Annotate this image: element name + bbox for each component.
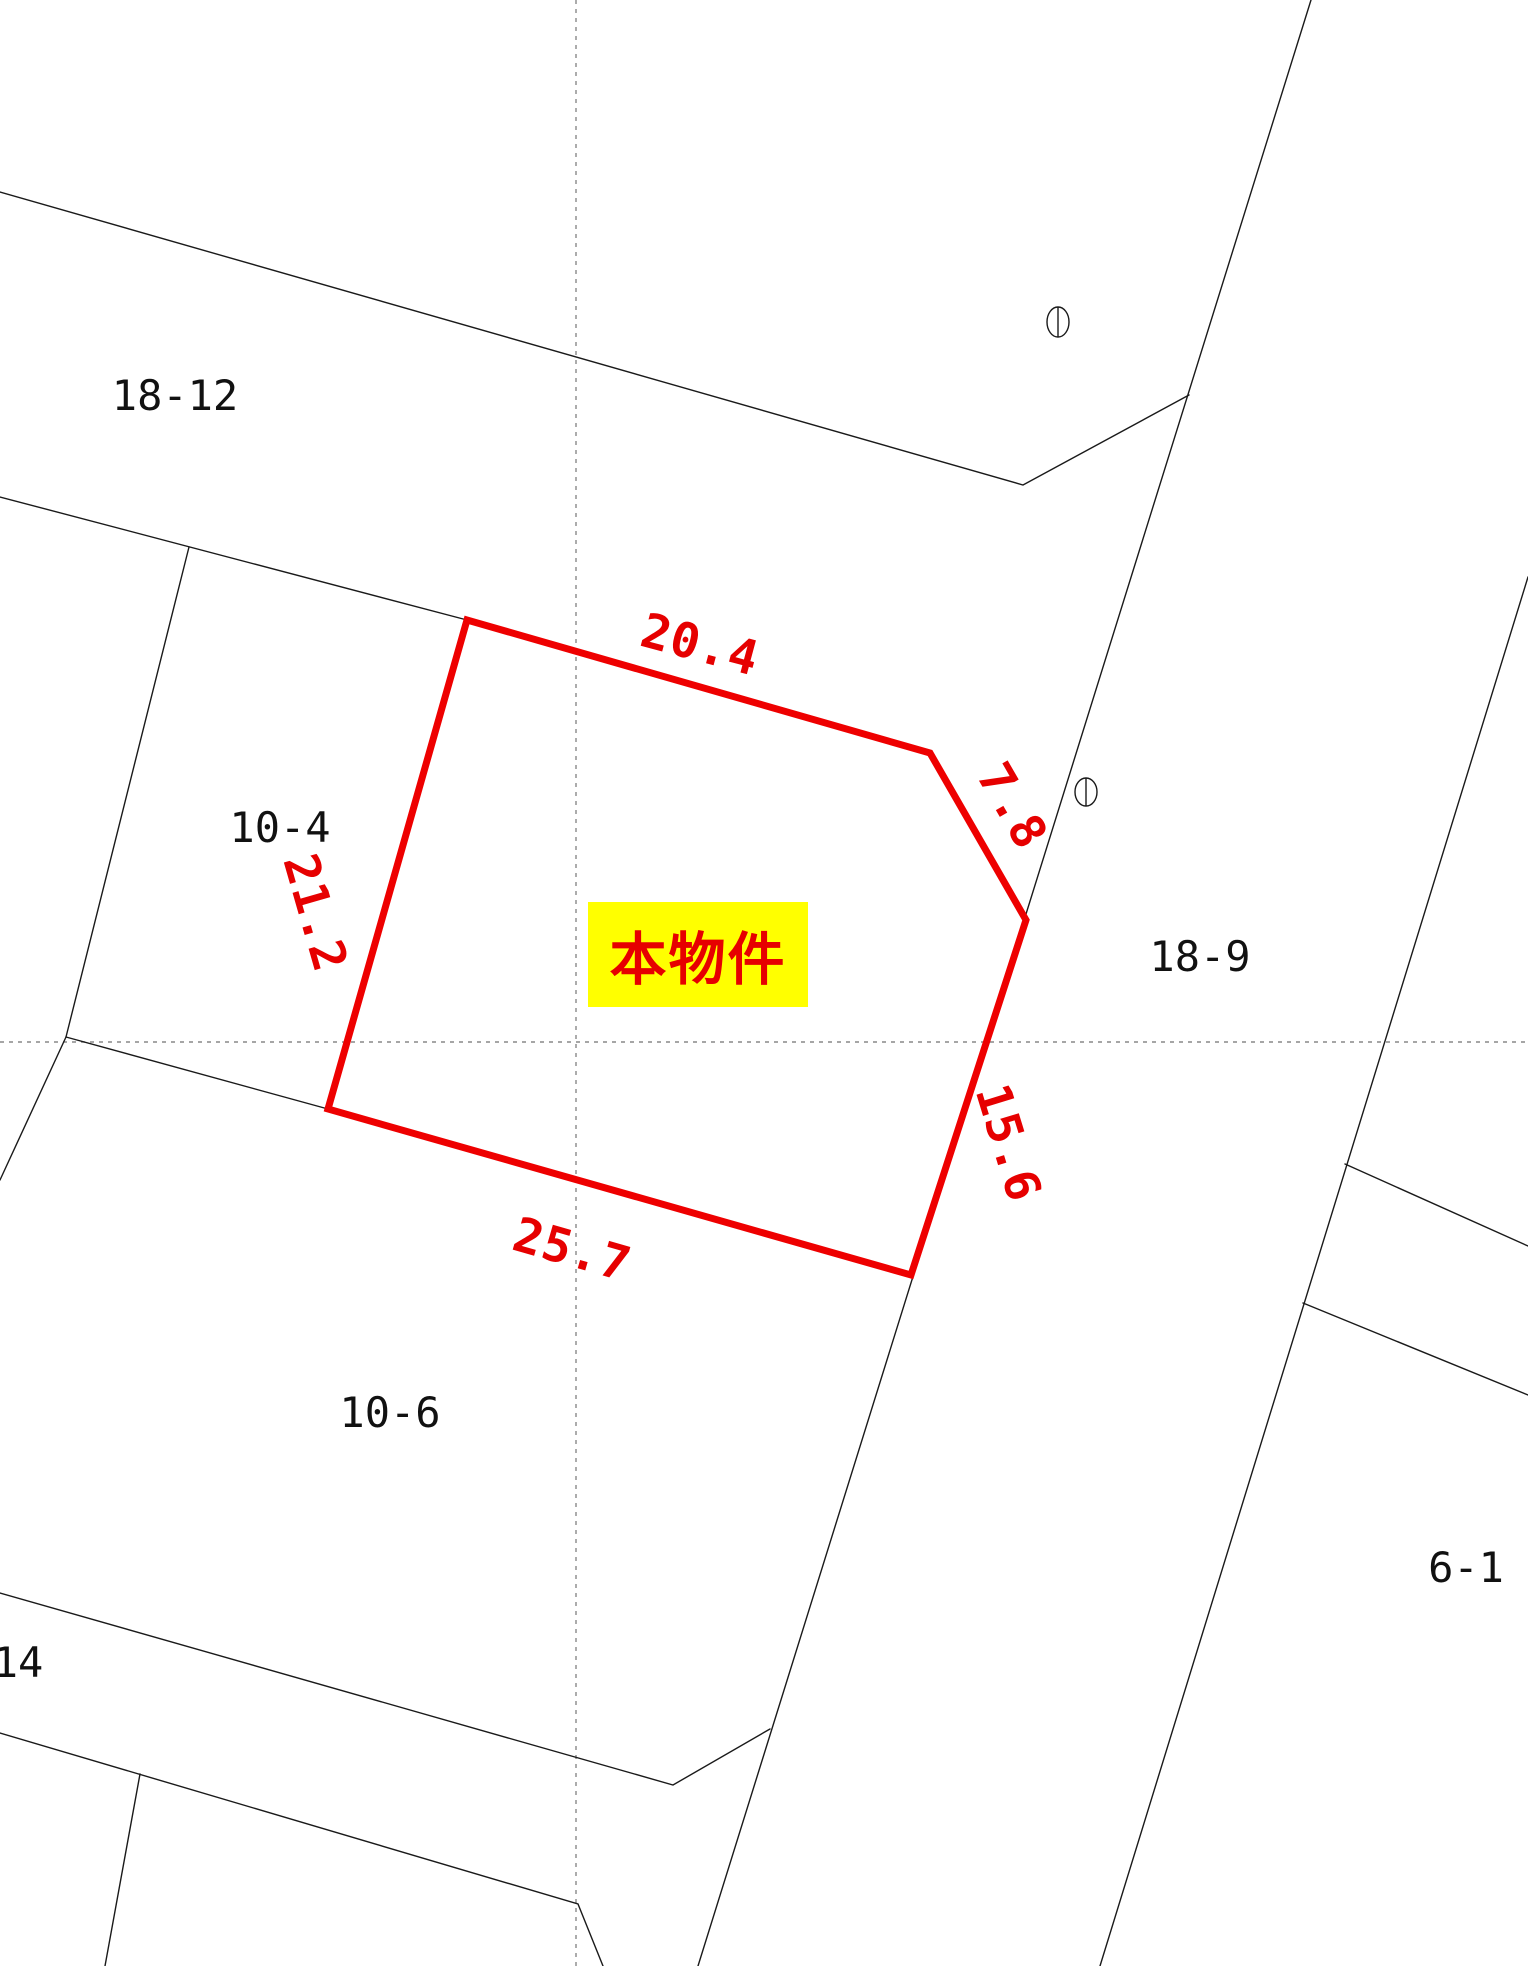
boundary-14-strip-upper — [0, 1593, 770, 1785]
boundary-hanger — [105, 1774, 140, 1966]
boundary-east-long — [1100, 577, 1528, 1966]
boundary-10-4-west — [66, 547, 189, 1037]
boundary-10-4-north — [0, 497, 467, 620]
boundary-14-strip-lower — [0, 1733, 603, 1966]
boundary-west-short — [0, 1037, 66, 1180]
subject-parcel-highlight: 本物件 — [588, 902, 808, 1007]
survey-marker-icon — [1047, 307, 1069, 337]
parcel-label-6-1: 6-1 — [1428, 1547, 1504, 1589]
parcel-label-10-4: 10-4 — [229, 807, 330, 849]
parcel-label-10-6: 10-6 — [339, 1392, 440, 1434]
survey-marker-icon — [1075, 778, 1097, 806]
parcel-label-14: 14 — [0, 1642, 43, 1684]
boundary-east-branch-1 — [1345, 1164, 1528, 1246]
cadastral-map: 18-12 10-4 18-9 10-6 6-1 14 20.4 7.8 21.… — [0, 0, 1528, 1966]
subject-parcel-label: 本物件 — [610, 914, 787, 996]
boundary-10-4-10-6 — [66, 1037, 328, 1109]
parcel-label-18-9: 18-9 — [1149, 936, 1250, 978]
boundary-east-branch-2 — [1303, 1303, 1528, 1395]
parcel-label-18-12: 18-12 — [112, 375, 238, 417]
boundary-18-12 — [0, 192, 1189, 485]
